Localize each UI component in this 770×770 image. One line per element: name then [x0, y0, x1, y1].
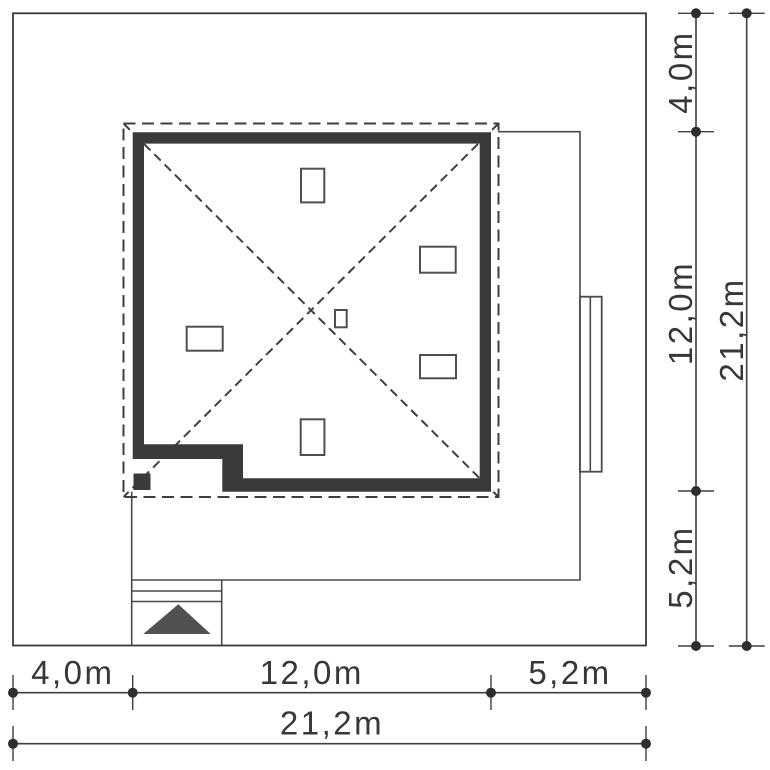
dimension-dot	[742, 8, 752, 18]
dimension-dot	[128, 688, 138, 698]
dim-right-segment-label: 4,0m	[662, 30, 699, 113]
dimension-dot	[691, 641, 701, 651]
site-plan-canvas: 4,0m 12,0m 5,2m 21,2m 4,0m 12,0m 5,2m 21…	[0, 0, 770, 770]
roof-opening	[187, 327, 223, 351]
dimension-dot	[691, 8, 701, 18]
dim-bottom-segment-label: 5,2m	[528, 654, 611, 691]
side-steps	[580, 297, 602, 472]
roof-opening	[301, 169, 324, 203]
dimension-dot	[691, 127, 701, 137]
dimension-dot	[8, 739, 18, 749]
dimension-right: 4,0m 12,0m 5,2m 21,2m	[662, 8, 765, 651]
dimension-dot	[486, 688, 496, 698]
roof-opening	[301, 419, 325, 455]
roof-opening	[420, 355, 456, 378]
dim-bottom-segment-label: 12,0m	[260, 654, 364, 691]
roof-opening	[420, 247, 456, 273]
dimension-dot	[742, 641, 752, 651]
dimension-dot	[691, 486, 701, 496]
dimension-dot	[641, 739, 651, 749]
dim-right-total-label: 21,2m	[713, 277, 750, 381]
dimension-dot	[641, 688, 651, 698]
roof-opening-small	[335, 310, 347, 327]
dim-bottom-total-label: 21,2m	[280, 705, 384, 742]
dimension-dot	[8, 688, 18, 698]
dim-right-segment-label: 12,0m	[662, 261, 699, 365]
site-plan-page: 4,0m 12,0m 5,2m 21,2m 4,0m 12,0m 5,2m 21…	[0, 0, 770, 770]
dim-bottom-segment-label: 4,0m	[31, 654, 114, 691]
dim-right-segment-label: 5,2m	[662, 525, 699, 608]
dimension-bottom: 4,0m 12,0m 5,2m 21,2m	[8, 654, 651, 761]
porch-pillar	[134, 474, 151, 491]
